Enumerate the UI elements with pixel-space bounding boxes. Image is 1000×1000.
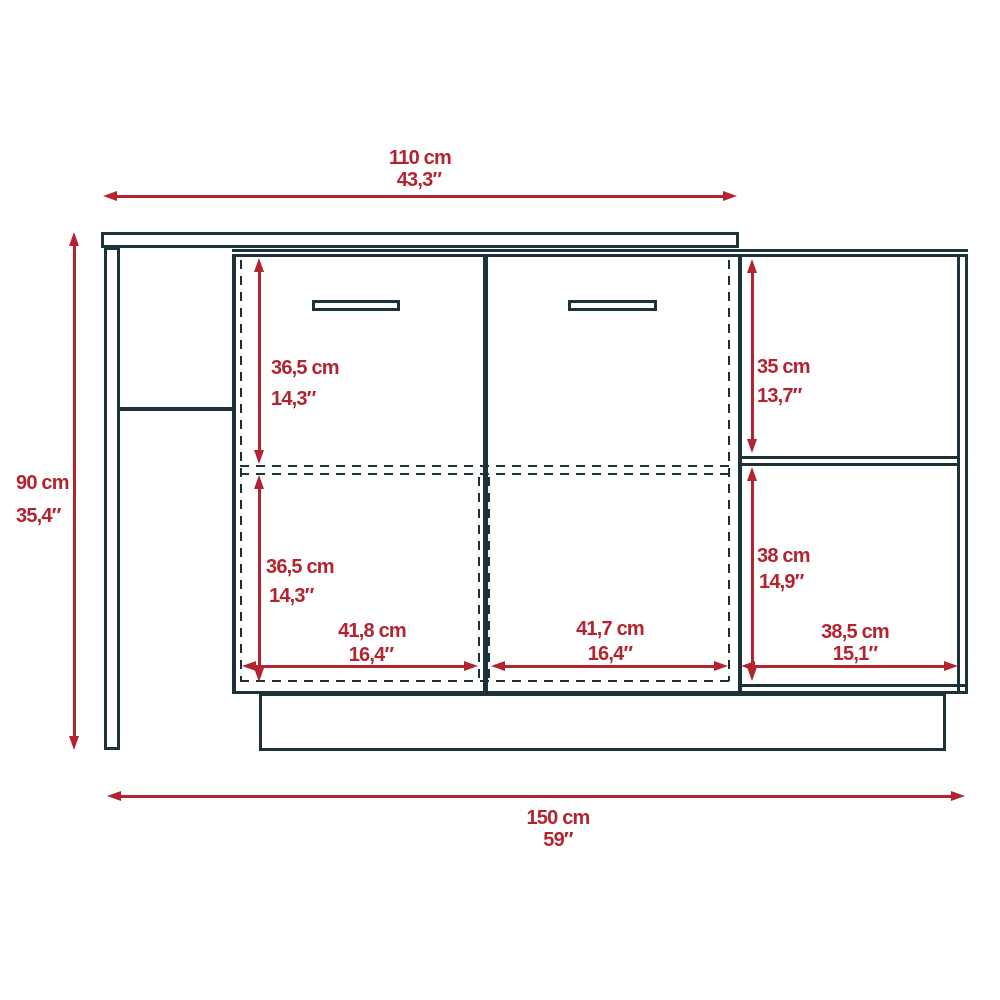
dimension-arrow-right-lower-height [747,467,758,681]
interior-dash-shelf-upper [240,465,730,467]
cabinet-left-panel [232,257,236,693]
counter-top [101,232,739,248]
right-open-shelf [742,456,957,466]
dim-label-bottom-width-cm: 150 cm [483,807,633,829]
plinth-base [259,693,946,751]
interior-dash-shelf-lower [240,473,730,475]
dim-label-height-cm: 90 cm [16,472,69,494]
dim-label-right-lower-inch: 14,9″ [759,571,804,593]
left-door-handle [312,300,400,311]
interior-dash-left [240,260,242,681]
dim-label-center-upper-inch: 14,3″ [271,388,316,410]
dim-label-right-shelf-inch: 15,1″ [780,643,930,665]
dim-label-bottom-width-inch: 59″ [483,829,633,851]
interior-dash-divider-left [478,477,480,681]
dim-label-top-width-cm: 110 cm [345,147,495,169]
dim-label-left-door-inch: 16,4″ [296,644,446,666]
desk-shelf-line [119,407,233,411]
cabinet-right-panel [738,257,742,693]
dim-label-left-door-cm: 41,8 cm [297,620,447,642]
dimension-arrow-top-width [103,191,737,202]
dim-label-right-upper-inch: 13,7″ [757,385,802,407]
right-bottom-line [742,684,968,687]
interior-dash-divider-right [488,477,490,681]
dim-label-center-lower-cm: 36,5 cm [266,556,334,578]
dim-label-right-shelf-cm: 38,5 cm [780,621,930,643]
right-side-inner-edge [957,257,960,694]
interior-dash-bottom [240,680,730,682]
carcass-top-line-2 [232,254,968,257]
dim-label-height-inch: 35,4″ [16,505,61,527]
dim-label-center-upper-cm: 36,5 cm [271,357,339,379]
right-side-outer-edge [965,257,968,694]
dim-label-right-door-cm: 41,7 cm [535,618,685,640]
dimension-arrow-center-upper-height [254,258,265,464]
dim-label-right-door-inch: 16,4″ [535,643,685,665]
left-leg-panel [104,247,120,750]
carcass-top-line-1 [232,249,968,252]
dim-label-top-width-inch: 43,3″ [344,169,494,191]
dimension-arrow-bottom-width [107,791,965,802]
right-door-handle [568,300,657,311]
furniture-dimension-diagram: 110 cm 43,3″ 90 cm 35,4″ 150 cm 59″ 36,5… [0,0,1000,1000]
interior-dash-right [728,260,730,681]
dimension-arrow-height [69,232,80,750]
dim-label-right-lower-cm: 38 cm [757,545,810,567]
dim-label-center-lower-inch: 14,3″ [269,585,314,607]
dim-label-right-upper-cm: 35 cm [757,356,810,378]
dimension-arrow-center-lower-height [254,475,265,682]
